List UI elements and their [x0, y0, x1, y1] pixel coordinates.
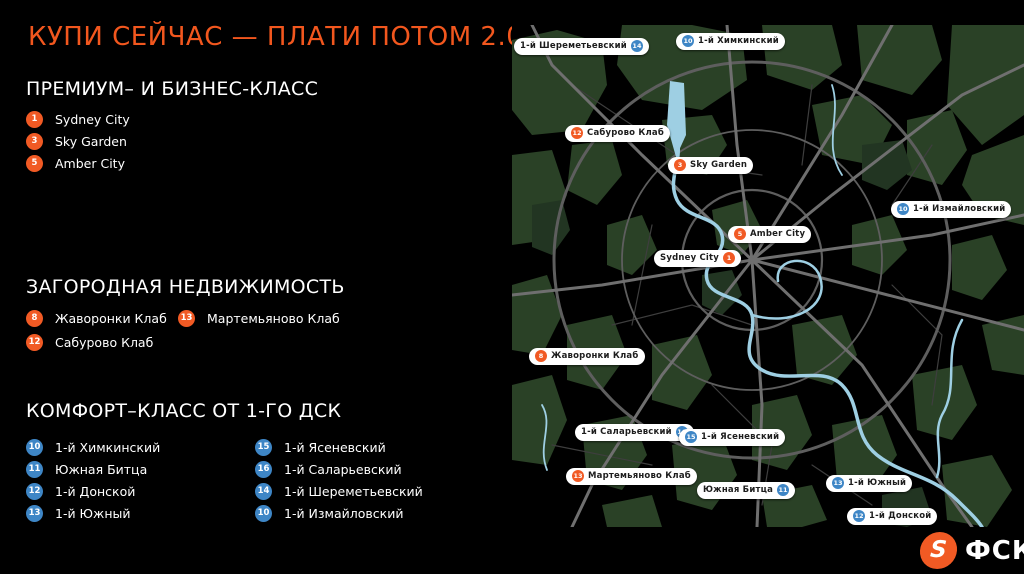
- legend-item: 13 Мартемьяново Клаб: [178, 306, 340, 330]
- map-pin-amber-city: 5Amber City: [728, 221, 811, 243]
- map-pin-label: 1-й Измайловский: [913, 204, 1005, 214]
- map-pin-martemyanovo: 13Мартемьяново Клаб: [566, 463, 697, 485]
- numbered-marker-badge: 11: [26, 461, 43, 478]
- legend-item-label: Южная Битца: [55, 462, 147, 477]
- legend-item-label: 1-й Ясеневский: [284, 440, 386, 455]
- legend-item: 5 Amber City: [26, 152, 130, 174]
- legend-item-label: 1-й Шереметьевский: [284, 484, 423, 499]
- legend-item-label: Amber City: [55, 156, 125, 171]
- numbered-marker-badge: 10: [26, 439, 43, 456]
- map-pin-label: Amber City: [750, 229, 805, 239]
- legend-item: 16 1-й Саларьевский: [255, 458, 423, 480]
- numbered-marker-badge: 3: [26, 133, 43, 150]
- legend-item-label: Sydney City: [55, 112, 130, 127]
- map-pin-badge: 10: [682, 35, 694, 47]
- numbered-marker-badge: 12: [26, 483, 43, 500]
- map-pin-label: 1-й Саларьевский: [581, 427, 672, 437]
- map-pin-badge: 1: [723, 252, 735, 264]
- legend-item: 3 Sky Garden: [26, 130, 130, 152]
- map-pin-label: 1-й Шереметьевский: [520, 41, 627, 51]
- map-pin-label: Sydney City: [660, 253, 719, 263]
- map-pin-izmaylovsky: 101-й Измайловский: [891, 196, 1011, 218]
- legend-item-label: Сабурово Клаб: [55, 335, 153, 350]
- map-pin-khimkinsky: 101-й Химкинский: [676, 28, 785, 50]
- map-pin-sheremetyevsky: 1-й Шереметьевский14: [514, 33, 649, 55]
- legend-item-label: 1-й Саларьевский: [284, 462, 402, 477]
- map-pin-label: Южная Битца: [703, 485, 773, 495]
- legend-suburban-col1: 8 Жаворонки Клаб 12 Сабурово Клаб: [26, 306, 167, 354]
- fsk-logo-text: ФСК: [965, 536, 1024, 566]
- legend-comfort-col1: 10 1-й Химкинский 11 Южная Битца 12 1-й …: [26, 436, 160, 524]
- legend-item: 1 Sydney City: [26, 108, 130, 130]
- legend-item: 12 1-й Донской: [26, 480, 160, 502]
- moscow-map: 1-й Шереметьевский14 101-й Химкинский 12…: [512, 25, 1024, 527]
- map-pin-sky-garden: 3Sky Garden: [668, 152, 753, 174]
- map-pin-zhavoronki: 8Жаворонки Клаб: [529, 343, 645, 365]
- legend-item-label: 1-й Химкинский: [55, 440, 160, 455]
- legend-item: 14 1-й Шереметьевский: [255, 480, 423, 502]
- map-pin-sydney-city: Sydney City1: [654, 245, 741, 267]
- legend-item: 8 Жаворонки Клаб: [26, 306, 167, 330]
- map-pin-label: Мартемьяново Клаб: [588, 471, 691, 481]
- legend-item-label: 1-й Измайловский: [284, 506, 403, 521]
- legend-item: 11 Южная Битца: [26, 458, 160, 480]
- numbered-marker-badge: 8: [26, 310, 43, 327]
- legend-item-label: 1-й Донской: [55, 484, 135, 499]
- numbered-marker-badge: 16: [255, 461, 272, 478]
- section-heading-comfort: КОМФОРТ–КЛАСС ОТ 1-ГО ДСК: [26, 400, 341, 422]
- numbered-marker-badge: 12: [26, 334, 43, 351]
- numbered-marker-badge: 10: [255, 505, 272, 522]
- map-pin-label: Sky Garden: [690, 160, 747, 170]
- legend-suburban-col2: 13 Мартемьяново Клаб: [178, 306, 340, 330]
- numbered-marker-badge: 5: [26, 155, 43, 172]
- map-pin-yuzhny: 131-й Южный: [826, 470, 912, 492]
- map-pin-badge: 14: [631, 40, 643, 52]
- numbered-marker-badge: 14: [255, 483, 272, 500]
- legend-item: 12 Сабурово Клаб: [26, 330, 167, 354]
- map-pin-yuzhnaya-bitsa: Южная Битца11: [697, 477, 795, 499]
- map-pin-badge: 12: [853, 510, 865, 522]
- map-pin-label: 1-й Донской: [869, 511, 931, 521]
- section-heading-suburban: ЗАГОРОДНАЯ НЕДВИЖИМОСТЬ: [26, 276, 345, 298]
- map-pin-label: 1-й Южный: [848, 478, 906, 488]
- legend-item-label: Жаворонки Клаб: [55, 311, 167, 326]
- numbered-marker-badge: 15: [255, 439, 272, 456]
- legend-item: 10 1-й Измайловский: [255, 502, 423, 524]
- map-pin-label: Жаворонки Клаб: [551, 351, 639, 361]
- legend-item-label: Sky Garden: [55, 134, 127, 149]
- map-pin-saburovo: 12Сабурово Клаб: [565, 120, 670, 142]
- legend-item: 15 1-й Ясеневский: [255, 436, 423, 458]
- map-pin-salaryevsky: 1-й Саларьевский16: [575, 419, 694, 441]
- numbered-marker-badge: 13: [178, 310, 195, 327]
- numbered-marker-badge: 13: [26, 505, 43, 522]
- section-heading-premium: ПРЕМИУМ– И БИЗНЕС-КЛАСС: [26, 78, 318, 100]
- map-pin-label: Сабурово Клаб: [587, 128, 664, 138]
- map-pin-label: 1-й Ясеневский: [701, 432, 779, 442]
- map-pin-label: 1-й Химкинский: [698, 36, 779, 46]
- map-pin-badge: 13: [832, 477, 844, 489]
- legend-premium: 1 Sydney City 3 Sky Garden 5 Amber City: [26, 108, 130, 174]
- map-pin-badge: 5: [734, 228, 746, 240]
- page-title: КУПИ СЕЙЧАС — ПЛАТИ ПОТОМ 2.0: [28, 22, 523, 52]
- fsk-logo: S ФСК: [920, 532, 1024, 569]
- map-pin-donskoy: 121-й Донской: [847, 503, 937, 525]
- map-pin-badge: 11: [777, 484, 789, 496]
- legend-item-label: Мартемьяново Клаб: [207, 311, 340, 326]
- map-pin-badge: 15: [685, 431, 697, 443]
- legend-item: 13 1-й Южный: [26, 502, 160, 524]
- legend-item: 10 1-й Химкинский: [26, 436, 160, 458]
- map-pin-yasenevsky: 151-й Ясеневский: [679, 424, 785, 446]
- map-pin-badge: 12: [571, 127, 583, 139]
- map-pin-badge: 13: [572, 470, 584, 482]
- map-canvas: [512, 25, 1024, 527]
- map-pin-badge: 3: [674, 159, 686, 171]
- numbered-marker-badge: 1: [26, 111, 43, 128]
- map-pin-badge: 10: [897, 203, 909, 215]
- map-pin-badge: 8: [535, 350, 547, 362]
- legend-item-label: 1-й Южный: [55, 506, 130, 521]
- fsk-logo-icon: S: [919, 532, 959, 569]
- legend-comfort-col2: 15 1-й Ясеневский 16 1-й Саларьевский 14…: [255, 436, 423, 524]
